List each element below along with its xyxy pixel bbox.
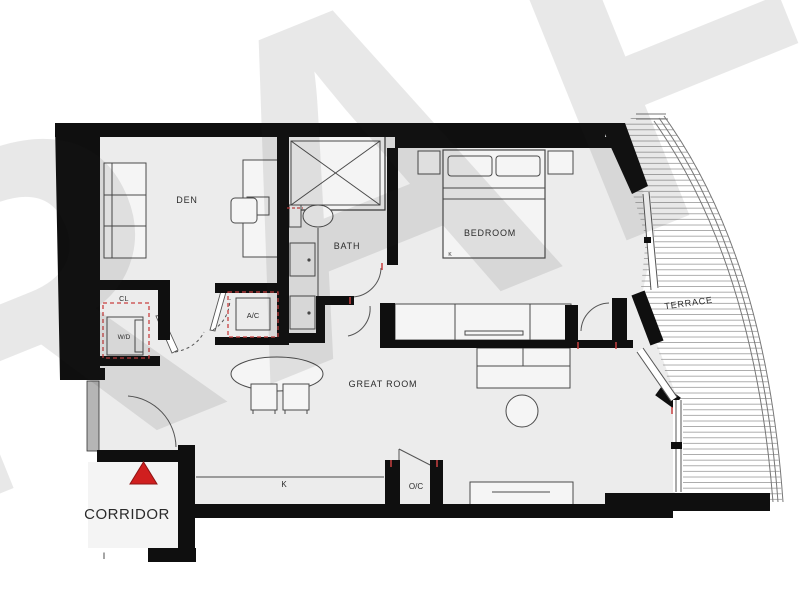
wall-corridor-bottom (148, 548, 196, 562)
floorplan-svg: DEN BATH BEDROOM GREAT ROOM TERRACE CORR… (0, 0, 800, 600)
wall-south-terrace (605, 493, 770, 511)
wall-oc-left (385, 460, 400, 507)
side-table (506, 395, 538, 427)
feature-label-oc: O/C (409, 482, 423, 491)
media-console (470, 482, 573, 505)
wall-oc-right (430, 460, 443, 507)
floorplan-canvas: DEN BATH BEDROOM GREAT ROOM TERRACE CORR… (0, 0, 800, 600)
